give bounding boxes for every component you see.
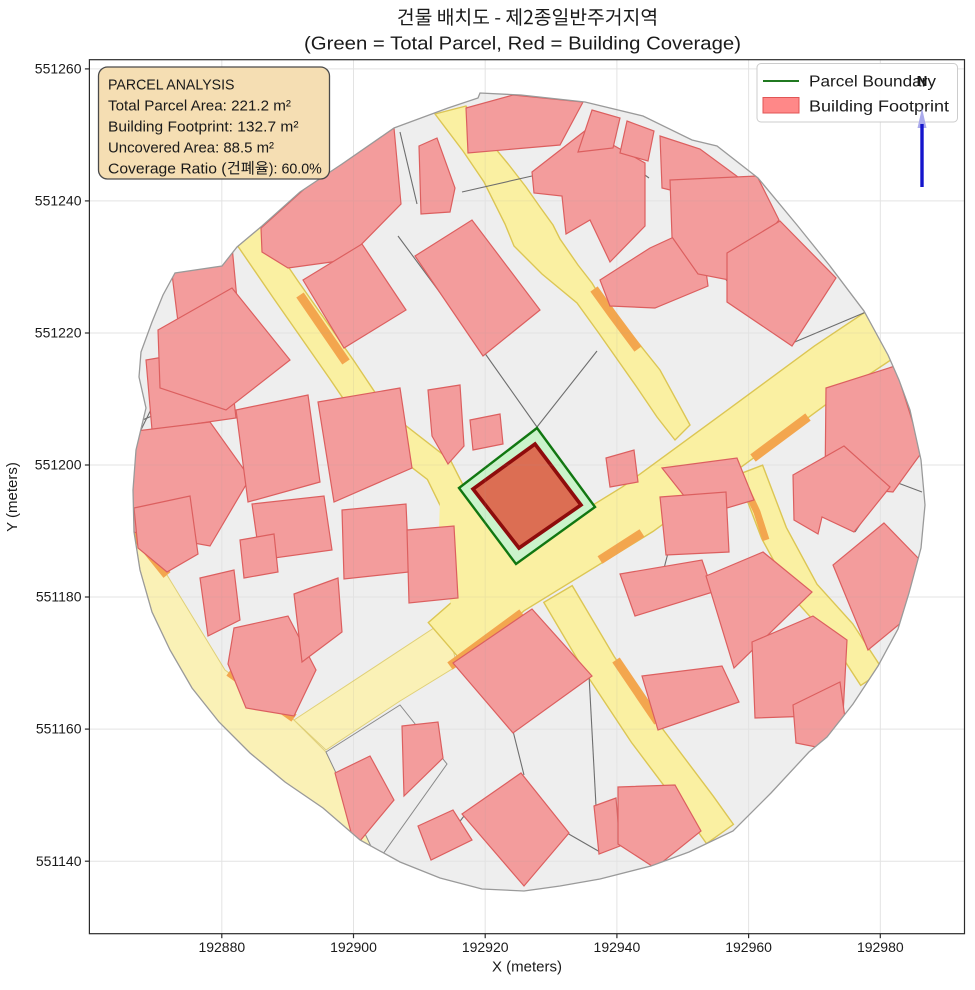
svg-text:Building Footprint: Building Footprint: [809, 99, 950, 116]
svg-text:551160: 551160: [36, 721, 82, 737]
svg-text:PARCEL ANALYSIS: PARCEL ANALYSIS: [108, 77, 235, 94]
svg-text:Uncovered Area: 88.5 m²: Uncovered Area: 88.5 m²: [108, 140, 274, 157]
svg-text:551140: 551140: [36, 853, 82, 869]
svg-text:192980: 192980: [857, 939, 904, 955]
svg-text:): 60.0%: ): 60.0%: [269, 161, 322, 178]
svg-text:Coverage Ratio (: Coverage Ratio (: [108, 161, 227, 178]
svg-text:551240: 551240: [35, 193, 82, 209]
svg-text:Building Footprint: 132.7 m²: Building Footprint: 132.7 m²: [108, 119, 299, 136]
svg-text:Y (meters): Y (meters): [4, 462, 21, 532]
svg-text:551260: 551260: [35, 61, 82, 77]
svg-text:192940: 192940: [594, 939, 641, 955]
svg-text:551180: 551180: [36, 589, 82, 605]
svg-text:X (meters): X (meters): [492, 959, 562, 976]
svg-text:551220: 551220: [35, 325, 82, 341]
svg-text:551200: 551200: [35, 457, 82, 473]
svg-text:(Green = Total Parcel, Red = B: (Green = Total Parcel, Red = Building Co…: [304, 34, 741, 54]
svg-text:192900: 192900: [330, 939, 377, 955]
svg-text:192920: 192920: [462, 939, 509, 955]
svg-text:N: N: [917, 73, 928, 90]
svg-text:Total Parcel Area: 221.2 m²: Total Parcel Area: 221.2 m²: [108, 98, 291, 115]
svg-text:192880: 192880: [198, 939, 245, 955]
svg-text:192960: 192960: [725, 939, 772, 955]
